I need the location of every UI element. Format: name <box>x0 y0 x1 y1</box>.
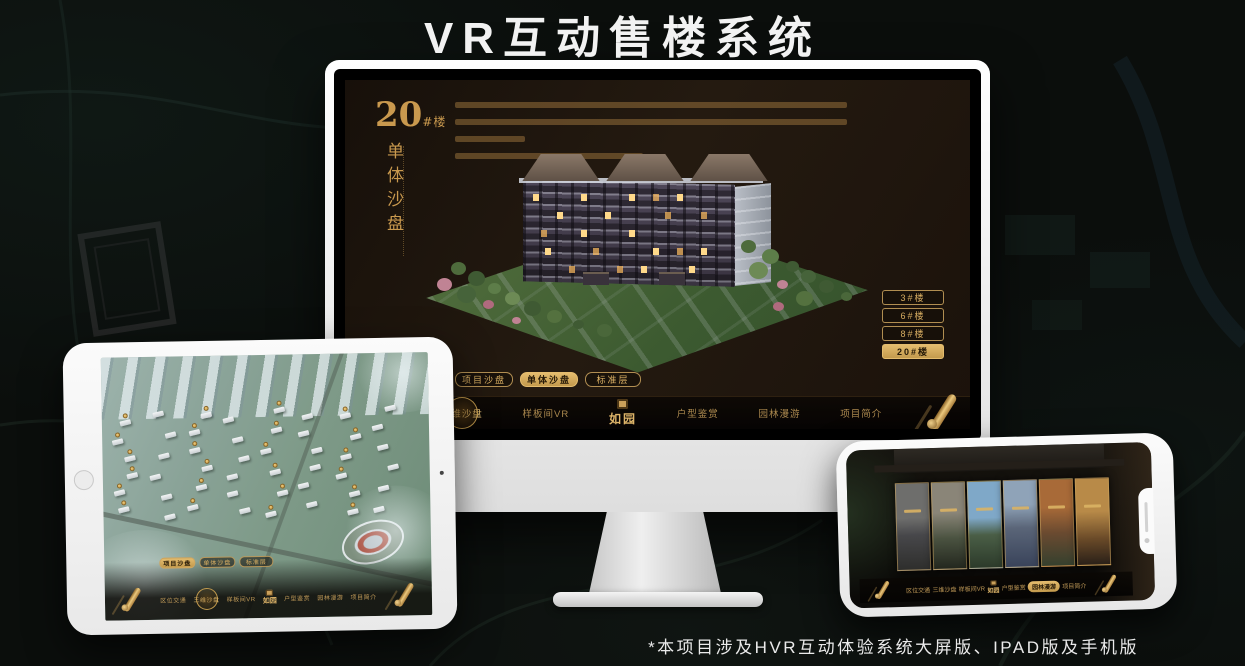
aerial-building-block <box>158 452 170 460</box>
ipad-screen: 项目沙盘 单体沙盘 标准层 区位交通 三维沙盘 样板间VR 如园 户型鉴赏 园林… <box>101 352 433 621</box>
residential-building <box>523 154 775 306</box>
intro-text-line <box>455 136 525 142</box>
mode-tab-group: 项目沙盘 单体沙盘 标准层 <box>455 372 641 387</box>
aerial-building-block <box>311 447 323 455</box>
aerial-building-block <box>269 468 281 476</box>
logo-text: 如园 <box>263 596 277 606</box>
building-number-badge <box>268 505 273 510</box>
aerial-building-block <box>222 416 234 424</box>
building-number: 20 <box>375 95 422 135</box>
page-title: VR互动售楼系统 <box>0 2 1245 66</box>
scroll-toggle-icon[interactable] <box>872 580 894 602</box>
tab-single-sandtable[interactable]: 单体沙盘 <box>520 372 578 387</box>
entrance-porch <box>583 272 609 285</box>
lit-windows <box>523 182 529 189</box>
nav-item-model-room-vr[interactable]: 样板间VR <box>523 406 570 420</box>
nav-item-garden-tour[interactable]: 园林漫游 <box>317 592 343 601</box>
nav-item-project-intro[interactable]: 项目简介 <box>351 591 377 600</box>
building-number-badge <box>127 449 132 454</box>
nav-item-project-intro[interactable]: 项目简介 <box>1062 580 1086 590</box>
aerial-building-block <box>114 489 126 497</box>
subtitle-divider <box>403 146 404 256</box>
logo-text: 如园 <box>987 585 999 594</box>
scene-panel[interactable] <box>1003 479 1039 568</box>
aerial-building-block <box>377 443 389 451</box>
tab-standard-floor[interactable]: 标准层 <box>585 372 641 387</box>
building-number-badge <box>272 463 277 468</box>
gate-structure <box>893 443 1104 473</box>
aerial-building-block <box>201 412 213 420</box>
aerial-building-block <box>118 506 130 514</box>
nav-item-location[interactable]: 区位交通 <box>906 585 930 595</box>
aerial-building-block <box>187 504 199 512</box>
building-number-badge <box>130 466 135 471</box>
ipad-device: 项目沙盘 单体沙盘 标准层 区位交通 三维沙盘 样板间VR 如园 户型鉴赏 园林… <box>62 337 457 636</box>
speaker-slit <box>1144 502 1148 532</box>
logo-text: 如园 <box>609 410 637 427</box>
floor-button-20[interactable]: 20#楼 <box>882 344 944 359</box>
entrance-porch <box>659 272 685 285</box>
scene-panel[interactable] <box>967 480 1003 569</box>
aerial-building-block <box>164 431 176 439</box>
aerial-building-block <box>227 473 239 481</box>
floor-button-6[interactable]: 6#楼 <box>882 308 944 323</box>
intro-text-line <box>455 102 847 108</box>
aerial-building-block <box>189 447 201 455</box>
scroll-toggle-icon[interactable] <box>118 586 146 614</box>
aerial-building-block <box>124 455 136 463</box>
building-number-badge <box>263 442 268 447</box>
building-number-badge <box>274 421 279 426</box>
building-number-badge <box>343 406 348 411</box>
scene-gallery <box>895 477 1111 571</box>
nav-logo[interactable]: 如园 <box>987 580 999 594</box>
building-number-badge <box>204 406 209 411</box>
phone-device: 区位交通 三维沙盘 样板间VR 如园 户型鉴赏 园林漫游 项目简介 <box>836 432 1178 617</box>
nav-item-floorplans[interactable]: 户型鉴赏 <box>1002 582 1026 592</box>
roof-cap <box>683 154 775 181</box>
scroll-toggle-icon[interactable] <box>1099 573 1121 595</box>
aerial-building-block <box>274 407 286 415</box>
scene-panel[interactable] <box>1039 478 1075 567</box>
scroll-toggle-icon[interactable] <box>922 392 964 429</box>
footnote: *本项目涉及HVR互动体验系统大屏版、IPAD版及手机版 <box>648 633 1139 658</box>
aerial-building-block <box>265 510 277 518</box>
aerial-building-block <box>202 465 214 473</box>
phone-screen: 区位交通 三维沙盘 样板间VR 如园 户型鉴赏 园林漫游 项目简介 <box>846 442 1155 608</box>
building-number-badge <box>123 413 128 418</box>
nav-item-3d-sandtable[interactable]: 三维沙盘 <box>193 594 219 603</box>
aerial-building-block <box>372 424 384 432</box>
tab-standard-floor[interactable]: 标准层 <box>239 556 273 568</box>
main-navbar: 区位交通 三维沙盘 样板间VR 如园 户型鉴赏 园林漫游 项目简介 <box>109 581 428 615</box>
nav-item-location[interactable]: 区位交通 <box>160 595 186 604</box>
building-number-heading: 20#楼 <box>375 98 446 132</box>
scroll-toggle-icon[interactable] <box>391 581 419 609</box>
aerial-building-block <box>306 501 318 509</box>
nav-item-garden-tour[interactable]: 园林漫游 <box>1028 580 1060 592</box>
aerial-building-block <box>350 433 362 441</box>
aerial-building-block <box>271 427 283 435</box>
building-number-badge <box>190 499 195 504</box>
mode-tab-group: 项目沙盘 单体沙盘 标准层 <box>159 556 273 569</box>
aerial-building-block <box>340 412 352 420</box>
home-button[interactable] <box>74 470 94 490</box>
floor-button-3[interactable]: 3#楼 <box>882 290 944 305</box>
aerial-building-block <box>227 490 239 498</box>
nav-item-3d-sandtable[interactable]: 三维沙盘 <box>932 584 956 594</box>
aerial-building-block <box>119 419 131 427</box>
aerial-building-block <box>340 453 352 461</box>
roof-cap <box>599 154 691 181</box>
building-number-badge <box>280 484 285 489</box>
building-number-suffix: #楼 <box>422 115 446 129</box>
building-number-badge <box>199 478 204 483</box>
camera-dot <box>1144 538 1149 543</box>
building-number-badge <box>117 483 122 488</box>
tab-project-sandtable[interactable]: 项目沙盘 <box>159 557 195 569</box>
aerial-building-block <box>260 447 272 455</box>
building-number-badge <box>353 427 358 432</box>
building-number-badge <box>277 401 282 406</box>
monitor-stand-neck <box>588 512 722 598</box>
aerial-building-block <box>149 473 161 481</box>
aerial-building-block <box>387 464 399 472</box>
building-number-badge <box>122 500 127 505</box>
building-number-badge <box>343 447 348 452</box>
tab-project-sandtable[interactable]: 项目沙盘 <box>455 372 513 387</box>
building-number-badge <box>192 423 197 428</box>
building-number-badge <box>205 459 210 464</box>
aerial-building-block <box>298 430 310 438</box>
phone-notch <box>1138 488 1155 554</box>
building-3d-render[interactable] <box>411 144 891 402</box>
aerial-building-block <box>276 490 288 498</box>
aerial-building-block <box>112 438 124 446</box>
aerial-building-block <box>239 507 251 515</box>
nav-item-floorplans[interactable]: 户型鉴赏 <box>677 406 719 420</box>
poster-canvas: VR互动售楼系统 20#楼 单体沙盘 <box>0 0 1245 666</box>
aerial-building-block <box>126 472 138 480</box>
aerial-building-block <box>298 482 310 490</box>
nav-item-floorplans[interactable]: 户型鉴赏 <box>284 593 310 602</box>
scene-panel[interactable] <box>895 482 931 571</box>
nav-logo[interactable]: 如园 <box>263 590 277 606</box>
monitor-stand-base <box>553 592 763 607</box>
building-number-badge <box>352 485 357 490</box>
floor-button-group: 3#楼 6#楼 8#楼 20#楼 <box>882 290 944 362</box>
scene-panel[interactable] <box>1075 477 1111 566</box>
aerial-building-block <box>335 472 347 480</box>
building-number-badge <box>192 441 197 446</box>
aerial-building-block <box>164 513 176 521</box>
nav-logo[interactable]: 如园 <box>609 399 637 427</box>
aerial-building-block <box>302 413 314 421</box>
floor-button-8[interactable]: 8#楼 <box>882 326 944 341</box>
tree-cluster-right <box>741 240 756 253</box>
nav-item-project-intro[interactable]: 项目简介 <box>840 406 882 420</box>
scene-panel[interactable] <box>931 481 967 570</box>
building-front-face <box>523 179 735 287</box>
aerial-building-block <box>161 494 173 502</box>
building-number-badge <box>339 466 344 471</box>
intro-text-line <box>455 119 847 125</box>
nav-item-model-room-vr[interactable]: 样板间VR <box>227 594 256 604</box>
aerial-building-block <box>196 484 208 492</box>
seal-icon <box>617 399 628 409</box>
aerial-building-block <box>309 464 321 472</box>
nav-item-garden-tour[interactable]: 园林漫游 <box>758 406 800 420</box>
aerial-building-block <box>152 410 164 418</box>
building-side-face <box>735 183 771 286</box>
roof-cap <box>515 154 607 181</box>
tab-single-sandtable[interactable]: 单体沙盘 <box>199 556 235 568</box>
aerial-building-block <box>188 429 200 437</box>
tree-cluster-left <box>451 262 466 275</box>
aerial-building-block <box>232 436 244 444</box>
nav-item-model-room-vr[interactable]: 样板间VR <box>959 583 986 593</box>
aerial-building-block <box>238 455 250 463</box>
building-number-badge <box>115 432 120 437</box>
front-camera-dot <box>440 471 444 475</box>
